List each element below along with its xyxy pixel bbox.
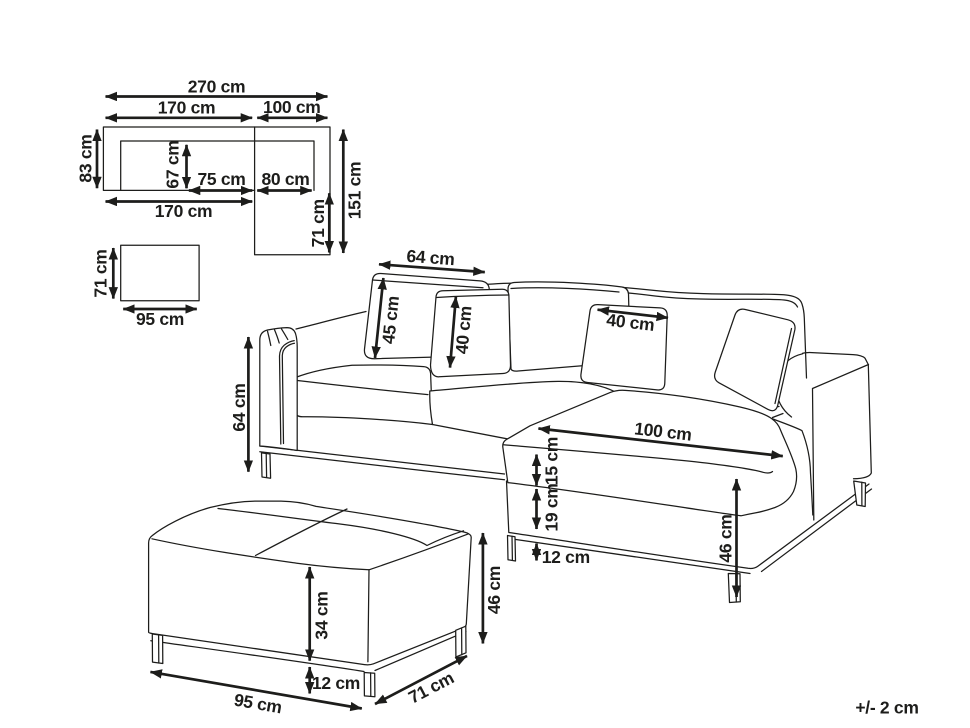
svg-text:12 cm: 12 cm bbox=[312, 673, 360, 693]
svg-text:100 cm: 100 cm bbox=[263, 97, 321, 117]
svg-text:83 cm: 83 cm bbox=[76, 134, 96, 182]
svg-text:19 cm: 19 cm bbox=[542, 483, 562, 531]
svg-text:46 cm: 46 cm bbox=[484, 566, 504, 614]
svg-text:67 cm: 67 cm bbox=[163, 140, 183, 188]
svg-text:71 cm: 71 cm bbox=[90, 249, 110, 297]
svg-text:170 cm: 170 cm bbox=[155, 201, 213, 221]
svg-text:95 cm: 95 cm bbox=[136, 309, 184, 329]
svg-text:15 cm: 15 cm bbox=[542, 437, 562, 485]
svg-text:170 cm: 170 cm bbox=[158, 97, 216, 117]
svg-text:40 cm: 40 cm bbox=[452, 305, 476, 355]
svg-text:46 cm: 46 cm bbox=[716, 514, 736, 562]
svg-text:64 cm: 64 cm bbox=[229, 383, 249, 431]
svg-text:80 cm: 80 cm bbox=[261, 169, 309, 189]
svg-text:+/- 2 cm: +/- 2 cm bbox=[855, 698, 918, 718]
svg-text:270 cm: 270 cm bbox=[188, 77, 246, 97]
svg-text:64 cm: 64 cm bbox=[406, 246, 455, 269]
svg-text:151 cm: 151 cm bbox=[345, 162, 365, 220]
svg-text:75 cm: 75 cm bbox=[197, 169, 245, 189]
svg-text:12 cm: 12 cm bbox=[542, 547, 590, 567]
svg-text:34 cm: 34 cm bbox=[311, 591, 331, 639]
svg-text:71 cm: 71 cm bbox=[308, 199, 328, 247]
